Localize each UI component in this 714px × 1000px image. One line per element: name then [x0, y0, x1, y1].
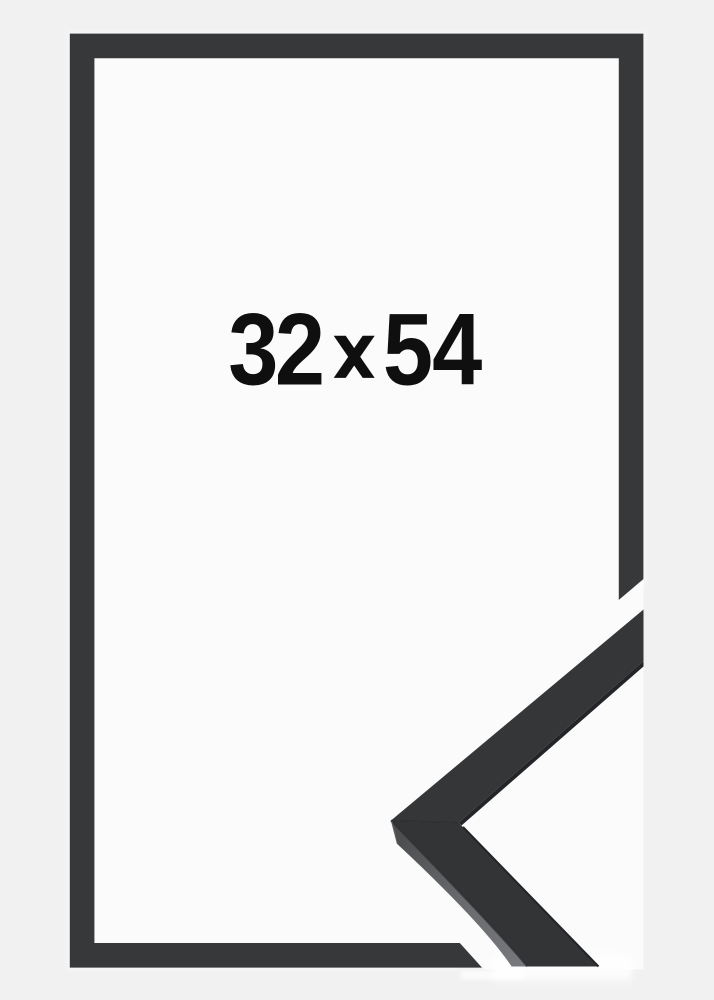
svg-text:2: 2 — [275, 293, 325, 407]
svg-text:5: 5 — [383, 293, 433, 407]
svg-text:3: 3 — [228, 293, 278, 407]
svg-text:4: 4 — [432, 293, 482, 407]
